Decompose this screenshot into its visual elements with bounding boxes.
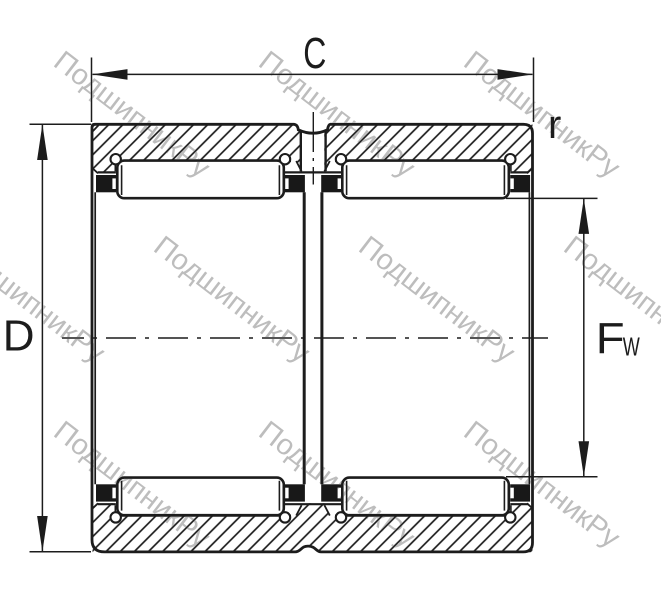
svg-text:W: W <box>623 332 641 361</box>
svg-text:F: F <box>596 313 625 362</box>
